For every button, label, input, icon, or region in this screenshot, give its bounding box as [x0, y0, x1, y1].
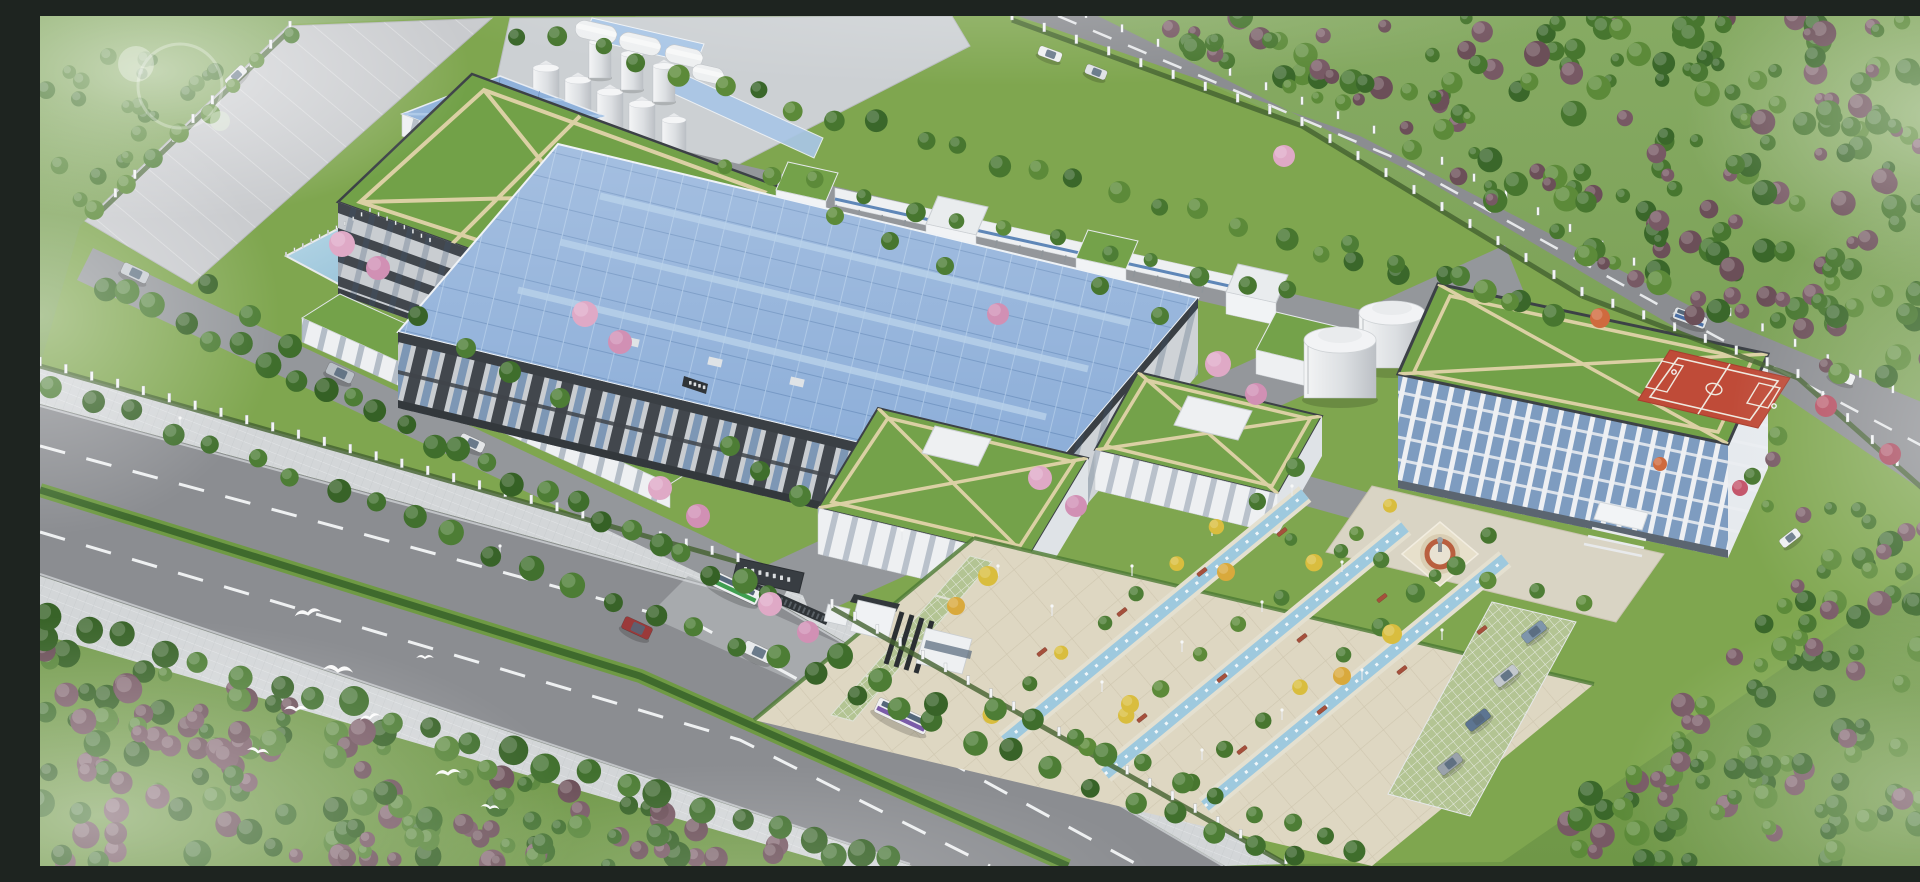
sign-glyph [780, 576, 783, 581]
biogas-tank-front [1302, 327, 1378, 408]
sign-glyph [694, 383, 697, 387]
sign-glyph [689, 381, 692, 385]
sign-glyph [766, 572, 769, 577]
sign-glyph [758, 570, 761, 575]
sign-glyph [698, 384, 701, 388]
sign-glyph [703, 386, 706, 390]
sign-glyph [787, 577, 790, 582]
aerial-campus-rendering [40, 16, 1920, 866]
sign-glyph [773, 574, 776, 579]
